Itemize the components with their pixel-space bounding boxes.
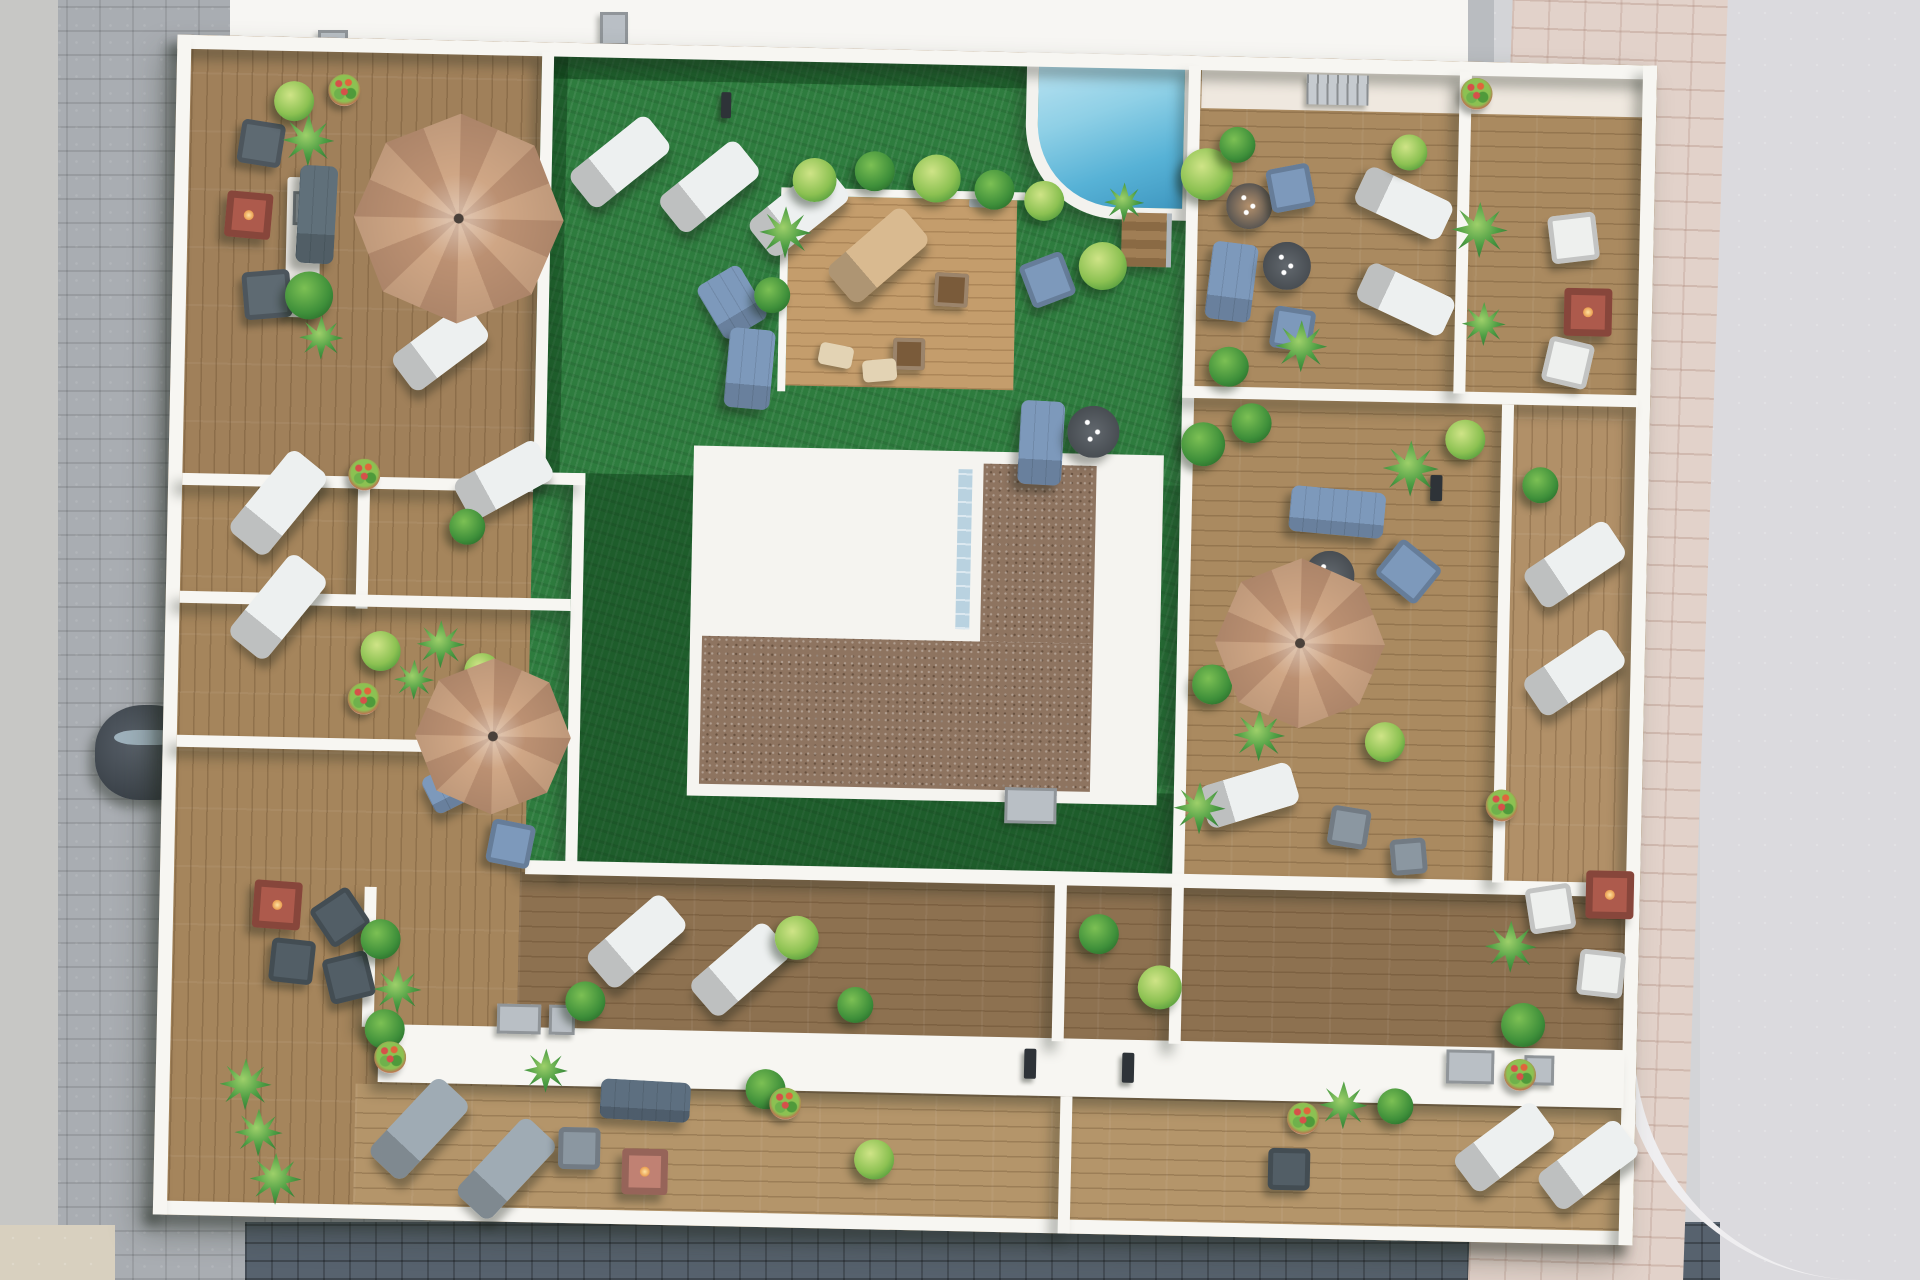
roof-vent xyxy=(600,12,628,46)
armchair xyxy=(1524,882,1576,934)
sofa xyxy=(1017,400,1066,486)
light-bollard xyxy=(1430,475,1443,501)
fire-pit-table xyxy=(252,879,303,930)
armchair xyxy=(558,1127,601,1170)
fire-pit-table xyxy=(1585,870,1634,919)
armchair xyxy=(1265,162,1316,213)
building-roof xyxy=(153,35,1657,1246)
side-table xyxy=(933,272,969,308)
rooftop-aerial-scene: Aerial 3D architectural render: rooftop … xyxy=(0,0,1920,1280)
fire-pit-table xyxy=(1564,288,1613,337)
fire-pit-table xyxy=(224,190,274,240)
sidewalk-left xyxy=(0,0,58,1280)
armchair xyxy=(236,118,286,168)
sofa xyxy=(599,1078,691,1123)
floor-cushion xyxy=(862,358,898,383)
armchair xyxy=(268,937,316,985)
pavement-corner-beige xyxy=(0,1225,115,1280)
light-bollard xyxy=(1122,1053,1135,1083)
lawn-shadow-strip-left xyxy=(577,473,693,870)
light-bollard xyxy=(721,92,732,118)
ac-unit xyxy=(497,1004,542,1035)
roof-access-gate xyxy=(1306,74,1369,105)
sofa xyxy=(1204,240,1259,323)
ac-unit xyxy=(1446,1049,1495,1084)
armchair xyxy=(1268,1148,1311,1191)
ottoman xyxy=(1326,804,1372,850)
ac-unit xyxy=(1004,787,1057,824)
sofa xyxy=(1288,485,1387,539)
core-gravel-right xyxy=(980,464,1097,644)
sofa xyxy=(295,165,338,265)
armchair xyxy=(1547,211,1600,264)
light-bollard xyxy=(1024,1049,1037,1079)
core-gravel-bottom xyxy=(699,636,1093,792)
fire-pit-table xyxy=(621,1148,668,1195)
armchair xyxy=(485,818,537,870)
sofa xyxy=(723,327,776,411)
ottoman xyxy=(1389,837,1428,876)
armchair xyxy=(1576,948,1627,999)
side-table xyxy=(893,338,926,371)
pool-steps xyxy=(1121,212,1172,267)
